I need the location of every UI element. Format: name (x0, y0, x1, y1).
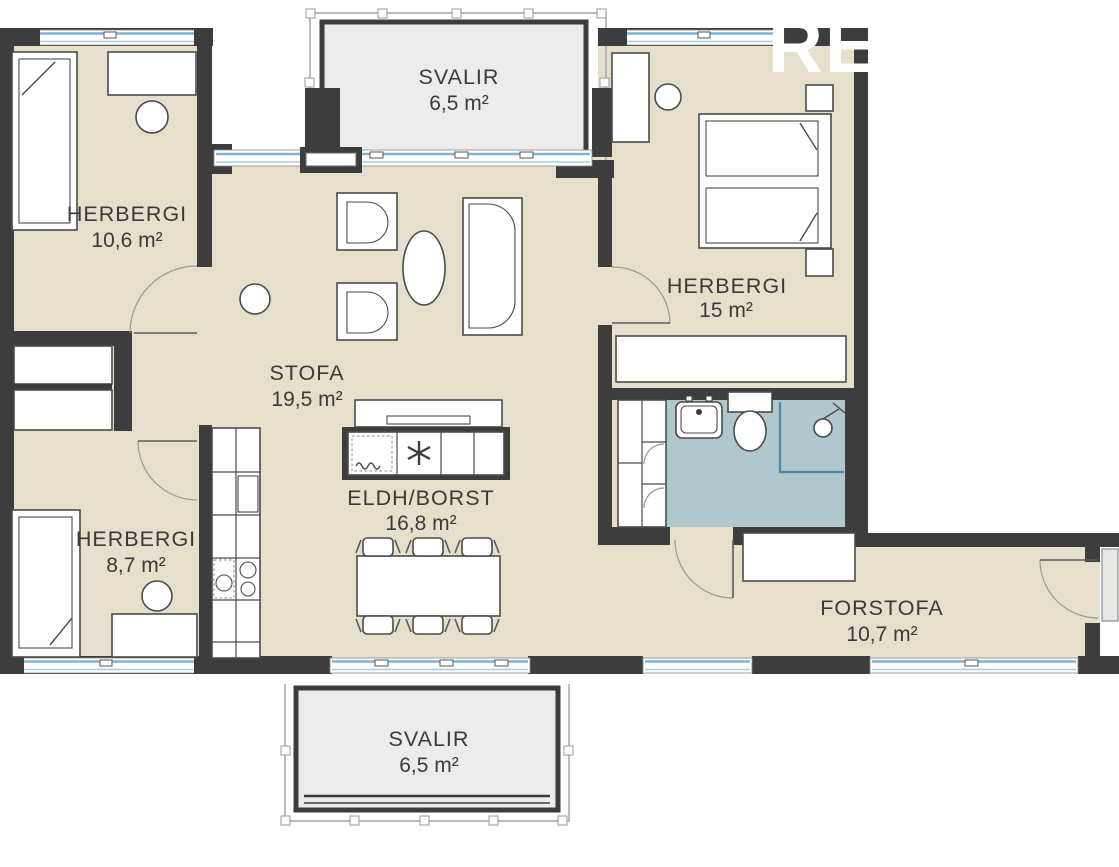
wardrobe-e-row (616, 336, 846, 382)
oven (238, 476, 258, 512)
chair (363, 538, 393, 556)
wardrobe-closet-upper (14, 346, 112, 384)
wardrobe-e-tall (612, 53, 649, 142)
label-herbergi-sw-area: 8,7 m² (106, 554, 166, 577)
kitchen-sink (216, 575, 232, 591)
railing-post (350, 816, 359, 825)
island-cells (348, 432, 504, 475)
stool-nw (136, 101, 168, 133)
label-herbergi-sw-name: HERBERGI (76, 527, 196, 551)
kitchen-counter-west (212, 428, 260, 658)
label-herbergi-e-area: 15 m² (699, 299, 753, 322)
label-forstofa-name: FORSTOFA (820, 596, 943, 620)
bathroom (618, 392, 845, 527)
window-bedroom-nw (36, 29, 198, 46)
nightstand-e-bottom (806, 249, 833, 276)
label-eldhus-area: 16,8 m² (385, 512, 456, 535)
desk-nw (108, 52, 196, 95)
railing-post (597, 9, 606, 18)
wall-bottom-forstofa-e (1078, 656, 1119, 674)
burner-1 (240, 562, 256, 578)
window-forstofa-south-long (870, 658, 1078, 673)
window-living-south-balcony-door (330, 658, 530, 673)
window-forstofa-south-small (643, 658, 752, 673)
railing-post (378, 9, 387, 18)
label-stofa-name: STOFA (269, 361, 344, 385)
railing-post (558, 816, 567, 825)
bed-mattress-e2 (706, 188, 818, 243)
closet-nw (14, 346, 112, 430)
railing-post (564, 746, 573, 755)
desk-sw (112, 614, 197, 657)
label-herbergi-nw-area: 10,6 m² (91, 229, 162, 252)
wall-mid-vertical-lower (598, 325, 612, 545)
floor-plan: SVALIR 6,5 m² HERBERGI 10,6 m² HERBERGI … (0, 0, 1119, 867)
coffee-table (403, 231, 445, 305)
wardrobe-closet-lower (14, 390, 112, 430)
dining-table (357, 556, 500, 616)
railing-post (600, 78, 609, 87)
window-bedroom-sw (20, 657, 198, 674)
floor-lamp (240, 284, 270, 314)
closet-divider (14, 384, 112, 390)
chair (462, 538, 492, 556)
balcony-door-top (300, 147, 362, 173)
tv (387, 416, 470, 424)
wall-forstofa-top (855, 533, 1119, 547)
entry-door-panel (1102, 549, 1118, 621)
burner-2 (241, 582, 255, 596)
stool-sw (142, 581, 172, 611)
wall-closet-top (0, 331, 120, 346)
wall-pier-balcony-east (592, 88, 612, 157)
wardrobe-forstofa (743, 533, 855, 581)
shower-head-icon (814, 419, 832, 437)
wall-bath-right (845, 388, 868, 545)
railing-post (281, 746, 290, 755)
wall-bottom-living-east (528, 656, 614, 674)
wall-pier-balcony-west (305, 88, 340, 157)
wall-bath-bottom-west (612, 527, 670, 545)
chair (363, 616, 393, 634)
bed-mattress-nw (19, 59, 70, 223)
dining-chairs-top (356, 538, 499, 556)
label-eldhus-name: ELDH/BORST (347, 486, 494, 510)
chair (462, 616, 492, 634)
label-svalir-top-name: SVALIR (419, 65, 500, 89)
label-forstofa-area: 10,7 m² (846, 623, 917, 646)
stool-e (655, 84, 681, 110)
kitchen-island (342, 427, 510, 480)
dining-set (356, 538, 500, 634)
railing-post (305, 78, 314, 87)
railing-post (420, 816, 429, 825)
label-stofa-area: 19,5 m² (271, 388, 342, 411)
armchair-1-seat (347, 202, 388, 243)
window-bedroom-ne (623, 29, 785, 46)
bed-mattress-e1 (706, 121, 818, 176)
armchair-2-seat (347, 292, 388, 333)
railing-post (489, 816, 498, 825)
label-herbergi-e-name: HERBERGI (667, 274, 787, 298)
wall-bottom-forstofa-w (612, 656, 643, 674)
label-svalir-bottom-area: 6,5 m² (399, 754, 459, 777)
label-svalir-top-area: 6,5 m² (429, 92, 489, 115)
railing-post (524, 9, 533, 18)
railing-post (306, 9, 315, 18)
railing-post (452, 9, 461, 18)
watermark-logo: RE (768, 4, 878, 89)
label-herbergi-nw-name: HERBERGI (67, 202, 187, 226)
wall-entry-jamb-bottom (1085, 623, 1100, 658)
wall-kitchen-left (199, 425, 212, 660)
wall-closet-stub (114, 331, 132, 431)
chair (413, 616, 443, 634)
railing-post (281, 816, 290, 825)
wall-bottom-forstofa-mid (752, 656, 870, 674)
label-svalir-bottom-name: SVALIR (389, 727, 470, 751)
floor-plan-page: SVALIR 6,5 m² HERBERGI 10,6 m² HERBERGI … (0, 0, 1119, 867)
bath-sink (676, 396, 722, 438)
dining-chairs-bottom (356, 616, 499, 634)
chair (413, 538, 443, 556)
sofa-seat (469, 204, 515, 328)
